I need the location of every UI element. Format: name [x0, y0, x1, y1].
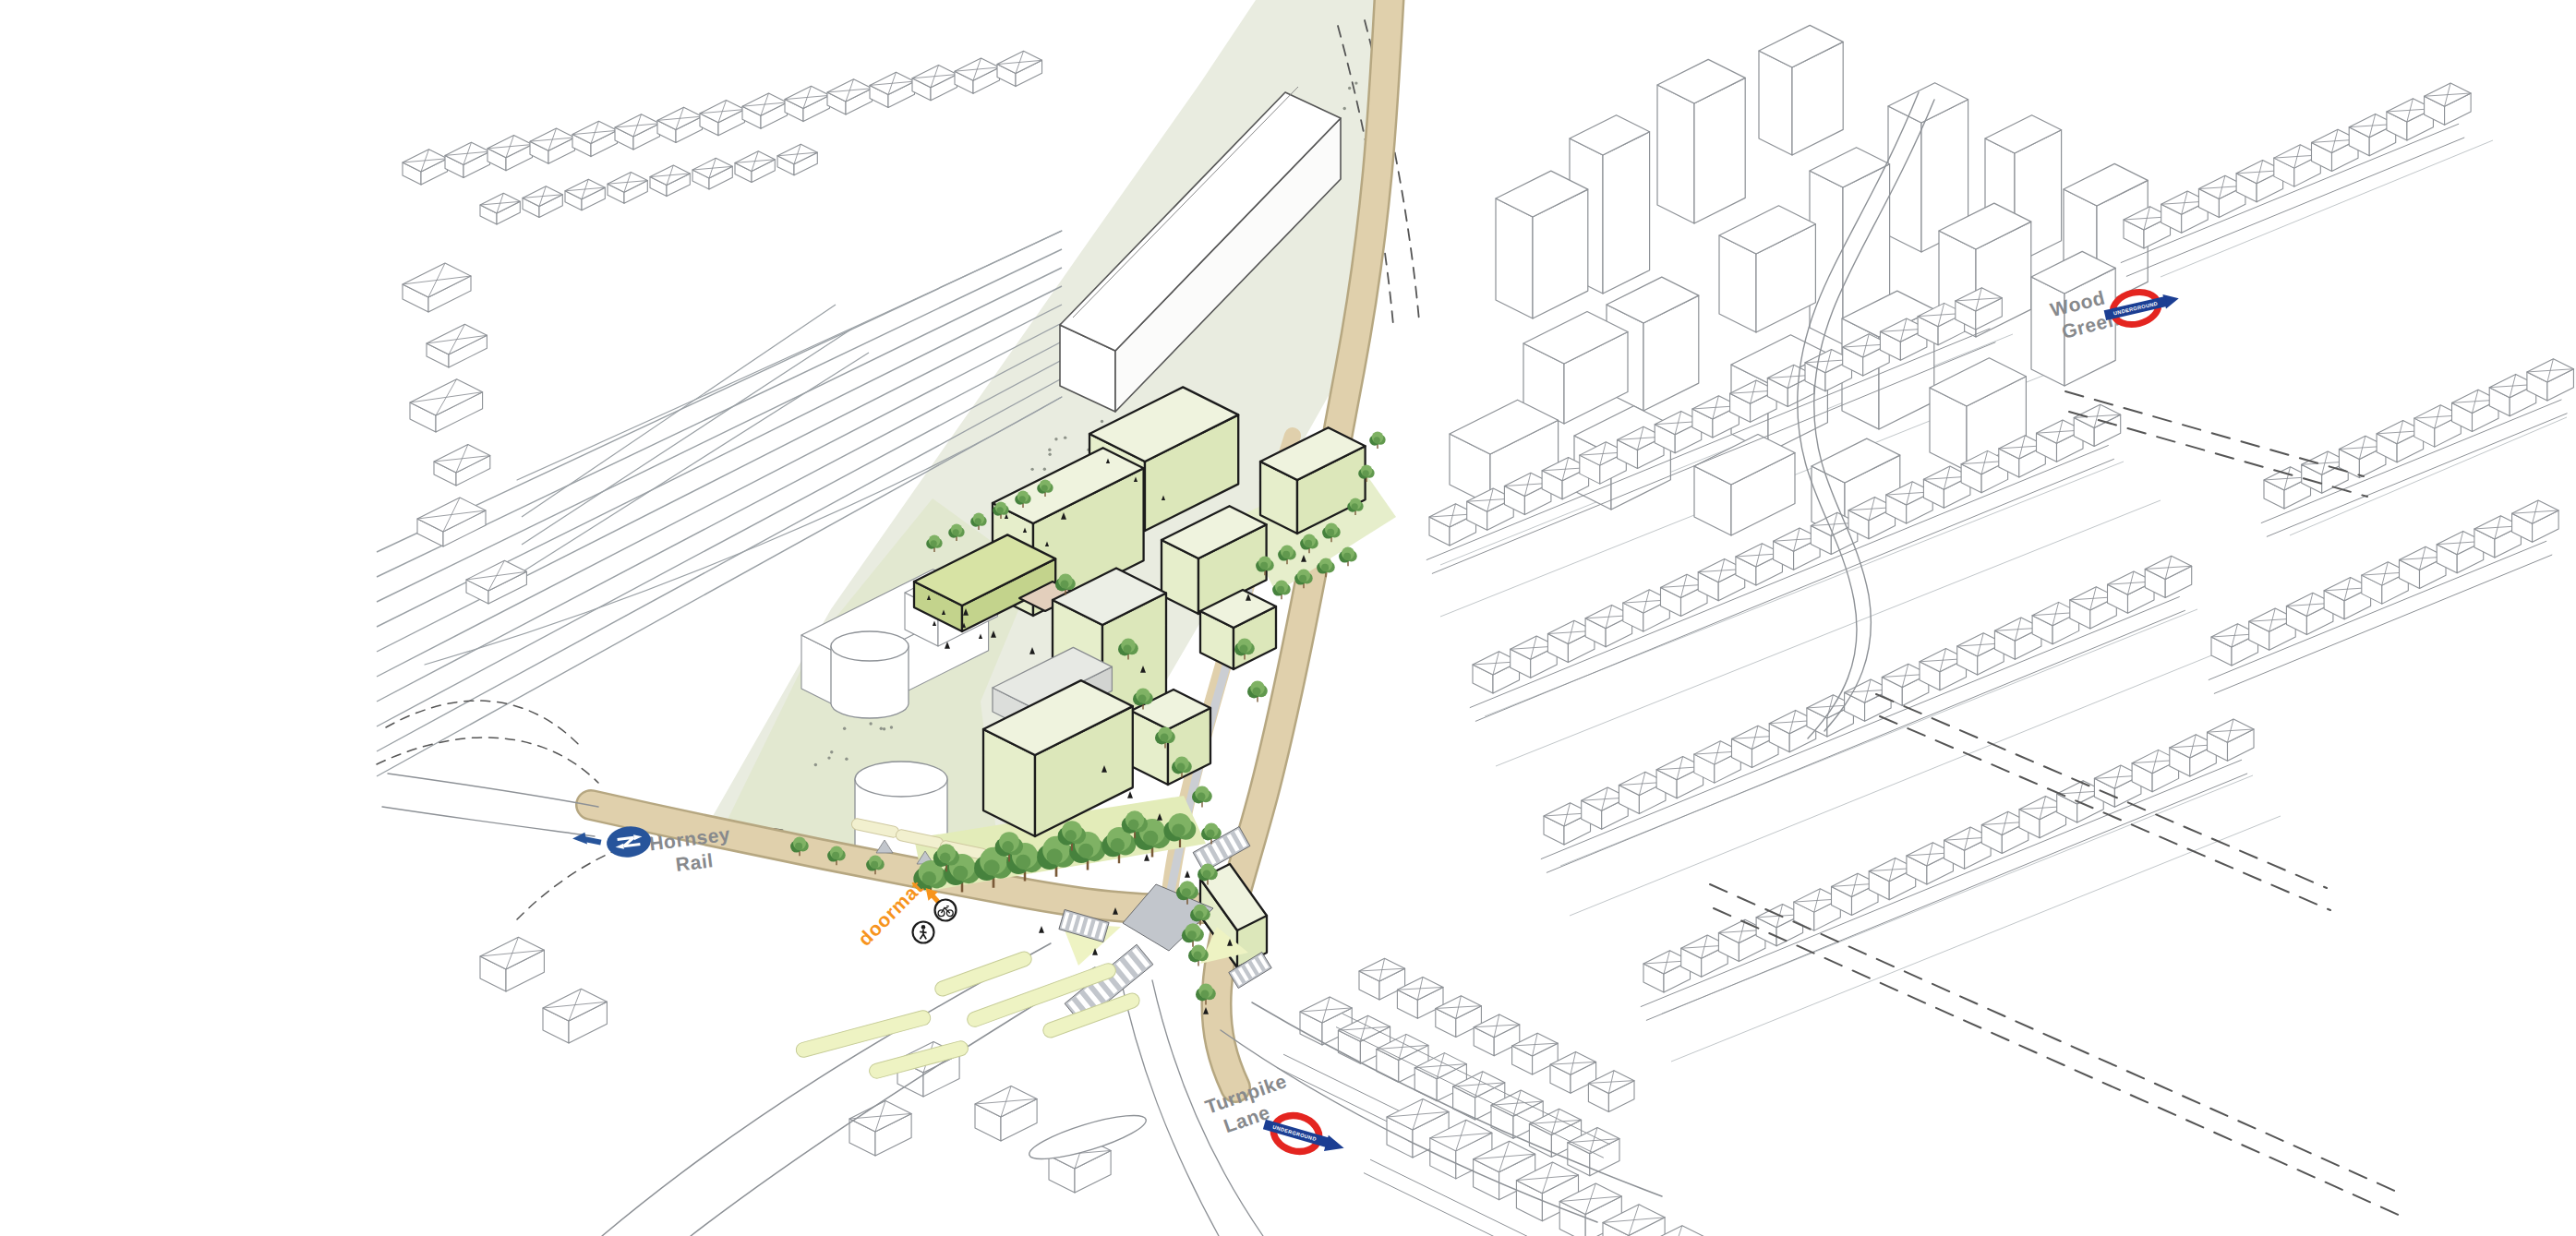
hornsey-label-line2: Rail — [675, 849, 715, 875]
underground-roundel-icon: UNDERGROUND — [1259, 1108, 1349, 1164]
hornsey-station-label: Hornsey Rail — [648, 823, 735, 878]
cycle-icon — [935, 900, 957, 921]
national-rail-icon — [572, 824, 652, 864]
masterplan-canvas: Wood Green UNDERGROUND Hornsey Rail door… — [0, 0, 2576, 1236]
pedestrian-icon — [913, 922, 934, 943]
masterplan-drawing: Wood Green UNDERGROUND Hornsey Rail door… — [0, 0, 2576, 1236]
